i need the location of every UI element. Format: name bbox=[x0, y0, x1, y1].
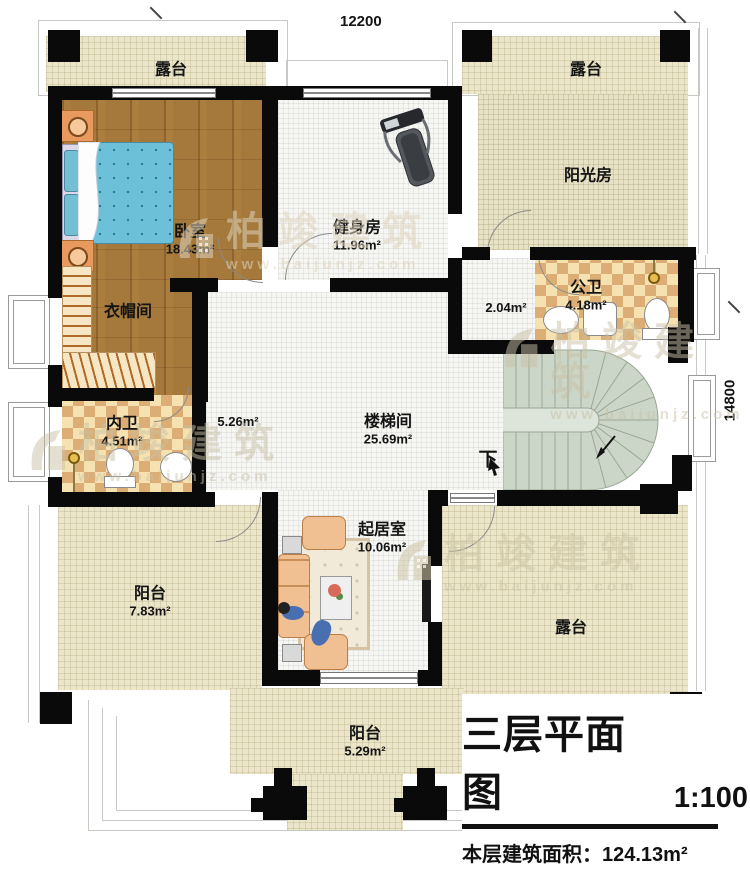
bed-pillow bbox=[64, 194, 79, 236]
room-label-stairwell: 楼梯间25.69m² bbox=[364, 413, 412, 448]
person-head bbox=[278, 602, 290, 614]
sink bbox=[160, 452, 192, 482]
nightstand bbox=[60, 110, 94, 142]
corbel-column bbox=[403, 786, 447, 820]
wall bbox=[192, 402, 206, 494]
wall bbox=[262, 492, 278, 686]
stairs-down-arrow bbox=[488, 458, 502, 476]
room-label-cloakroom: 衣帽间 bbox=[104, 302, 152, 321]
column bbox=[48, 30, 80, 62]
coffee-table bbox=[320, 576, 352, 620]
armchair bbox=[302, 516, 346, 550]
wall bbox=[48, 100, 62, 298]
area-label-closet: 2.04m² bbox=[485, 300, 526, 316]
column bbox=[462, 30, 492, 62]
room-label-terrace-top-left: 露台 bbox=[155, 60, 187, 79]
dimension-tick bbox=[728, 301, 741, 314]
railing-right-upper bbox=[698, 28, 708, 254]
dimension-top: 12200 bbox=[340, 13, 382, 30]
floor-stairwell bbox=[206, 292, 448, 490]
floor-plan: 露台 露台 阳光房 卧室18.43m² 健身房11.96m² 衣帽间 内卫4.5… bbox=[0, 0, 750, 871]
toilet-tank bbox=[104, 476, 136, 488]
tv bbox=[422, 564, 431, 622]
wall bbox=[460, 340, 554, 354]
room-label-bath-private: 内卫4.51m² bbox=[101, 415, 142, 450]
bed-pillow bbox=[64, 150, 79, 192]
room-label-balcony-bottom: 阳台5.29m² bbox=[344, 725, 385, 760]
wall bbox=[62, 388, 154, 401]
toilet bbox=[644, 298, 670, 332]
wall bbox=[530, 247, 696, 260]
wall bbox=[497, 490, 645, 506]
wall bbox=[668, 327, 688, 363]
wall bbox=[428, 506, 442, 566]
wall bbox=[262, 95, 278, 247]
dimension-right: 14800 bbox=[722, 371, 739, 431]
stairs bbox=[503, 348, 660, 492]
railing-left-lower bbox=[28, 505, 40, 723]
bay-window-right-2 bbox=[688, 375, 716, 462]
room-label-terrace-bottom: 露台 bbox=[555, 618, 587, 637]
room-label-sunroom: 阳光房 bbox=[564, 166, 612, 185]
shower-head bbox=[648, 272, 660, 284]
wall bbox=[192, 278, 208, 402]
bay-window-left-2 bbox=[8, 402, 50, 482]
room-label-living: 起居室10.06m² bbox=[358, 521, 406, 556]
wall bbox=[418, 670, 442, 686]
column bbox=[660, 30, 690, 62]
room-label-bedroom: 卧室18.43m² bbox=[166, 223, 214, 258]
title-divider bbox=[462, 824, 718, 829]
corbel-column bbox=[417, 768, 435, 788]
wardrobe-rack bbox=[62, 266, 92, 362]
stair-door bbox=[450, 493, 495, 503]
room-label-gym: 健身房11.96m² bbox=[333, 219, 381, 254]
dimension-tick bbox=[150, 7, 163, 20]
corbel-column bbox=[274, 768, 292, 788]
area-label-hall: 5.26m² bbox=[217, 414, 258, 430]
bay-window-left-1 bbox=[8, 295, 50, 369]
flower-vase bbox=[328, 584, 341, 597]
wall bbox=[462, 247, 490, 260]
wall bbox=[262, 670, 320, 686]
bedroom-window bbox=[112, 88, 216, 98]
plan-title: 三层平面图 bbox=[462, 702, 660, 818]
towel-pole bbox=[73, 462, 75, 496]
room-label-balcony-left: 阳台7.83m² bbox=[129, 585, 170, 620]
railing-gym-top bbox=[286, 60, 448, 88]
room-label-terrace-top-right: 露台 bbox=[570, 60, 602, 79]
bed-blanket bbox=[78, 142, 114, 242]
end-table bbox=[282, 644, 302, 662]
wall bbox=[428, 490, 448, 506]
wall bbox=[448, 86, 462, 214]
column bbox=[640, 484, 678, 514]
corbel-column bbox=[394, 798, 407, 812]
living-sliding-door bbox=[320, 672, 418, 684]
end-table bbox=[282, 536, 302, 554]
plan-scale: 1:100 bbox=[674, 782, 748, 818]
floor-area-line: 本层建筑面积：124.13m² bbox=[462, 838, 748, 867]
towel-pole-knob bbox=[68, 452, 80, 464]
wall bbox=[330, 278, 450, 292]
floor-closet-small bbox=[462, 258, 535, 340]
gym-window bbox=[303, 88, 431, 98]
sofa bbox=[278, 554, 310, 638]
corbel-column bbox=[251, 798, 264, 812]
title-block: 三层平面图 1:100 本层建筑面积：124.13m² 层高：3.3m bbox=[462, 694, 748, 856]
corbel-column bbox=[263, 786, 307, 820]
wall bbox=[48, 492, 215, 507]
wall bbox=[48, 365, 62, 407]
column bbox=[40, 692, 72, 724]
room-label-bath-public: 公卫4.18m² bbox=[565, 279, 606, 314]
column bbox=[246, 30, 278, 62]
bay-window-right-1 bbox=[692, 268, 720, 340]
